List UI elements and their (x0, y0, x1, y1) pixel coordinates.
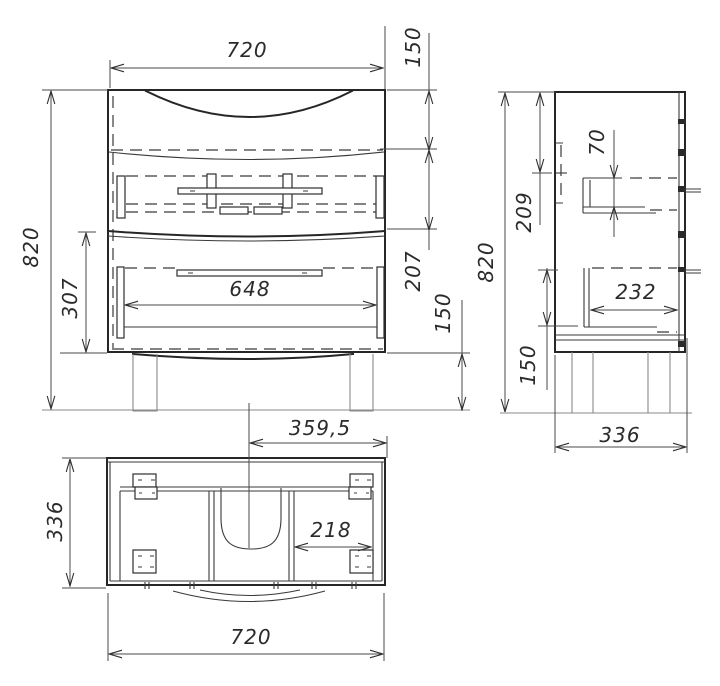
drawer-rail-right (376, 176, 384, 218)
sink-front-curve (146, 91, 352, 117)
upper-drawer-handle (178, 188, 322, 194)
dim-side-drawer-depth: 232 (615, 280, 656, 304)
leg-left (133, 354, 157, 411)
dim-top-depth: 336 (43, 500, 67, 541)
dim-front-lower-section: 307 (58, 277, 82, 318)
side-lower-drawer (555, 268, 685, 340)
side-cabinet-outline (555, 92, 701, 352)
dim-front-top-section: 150 (401, 26, 425, 67)
leg-back (648, 352, 670, 413)
dim-front-width: 720 (226, 38, 267, 62)
dim-front-drawer-inner: 648 (229, 277, 270, 301)
front-legs (42, 354, 470, 411)
dim-side-depth: 336 (599, 423, 640, 447)
dim-top-width: 720 (230, 625, 271, 649)
front-cabinet-outline (108, 90, 385, 352)
side-dimensions: 820 209 70 232 150 336 (474, 92, 687, 453)
lower-drawer-handle (177, 270, 322, 276)
technical-drawing-canvas: 720 820 307 150 207 648 150 (0, 0, 720, 686)
dim-side-height: 820 (474, 241, 498, 282)
drawing-sheet: 720 820 307 150 207 648 150 (0, 0, 720, 686)
wall-bracket-lower (685, 270, 701, 273)
dim-top-center-to-edge: 359,5 (289, 416, 351, 440)
leg-front (572, 352, 593, 413)
sink-drain-cutout (221, 488, 281, 549)
countertop-curve-inner (200, 590, 300, 596)
dim-front-height: 820 (19, 226, 43, 267)
countertop-curve-outer (173, 591, 325, 602)
drawer-rail-left (117, 267, 124, 338)
dim-front-middle-section: 207 (401, 250, 425, 291)
drawer-rail-left (117, 176, 125, 218)
dim-side-top-offset: 209 (512, 191, 536, 232)
side-upper-drawer (583, 178, 677, 213)
drawer-rail-right (377, 267, 384, 338)
dim-top-compartment: 218 (310, 518, 351, 542)
front-dimensions: 720 820 307 150 207 648 150 (19, 26, 470, 411)
bottom-apron-curve (133, 354, 353, 359)
dim-side-drawer-height: 70 (585, 128, 609, 155)
wall-bracket-upper (685, 189, 701, 192)
top-dimensions: 336 359,5 218 720 (43, 416, 387, 661)
dim-front-leg-height: 150 (431, 292, 455, 333)
dim-side-lower-height: 150 (516, 344, 540, 385)
drawer-separation (108, 231, 385, 237)
leg-right (350, 354, 373, 411)
front-upper-drawer (108, 174, 385, 241)
